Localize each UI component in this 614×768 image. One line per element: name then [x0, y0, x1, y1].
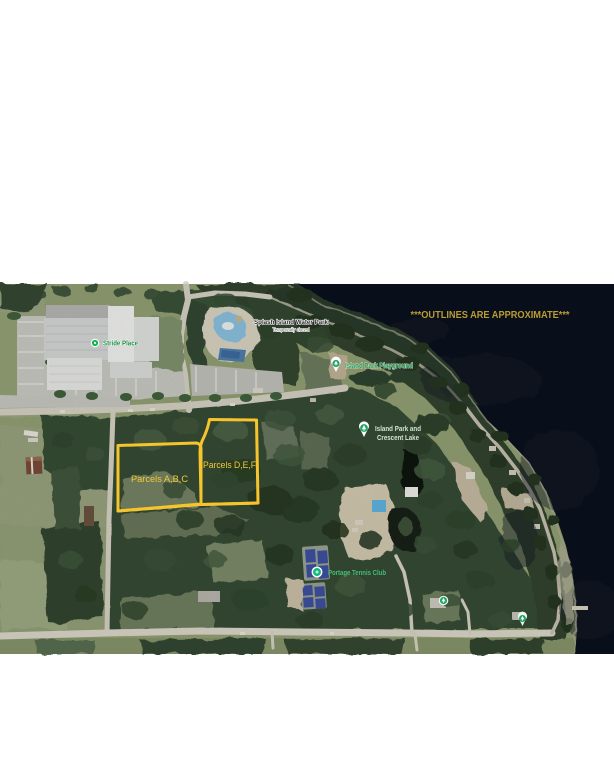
svg-text:Portage Tennis Club: Portage Tennis Club: [328, 568, 387, 577]
svg-text:Parcels D,E,F: Parcels D,E,F: [203, 460, 256, 471]
svg-text:***OUTLINES ARE APPROXIMATE***: ***OUTLINES ARE APPROXIMATE***: [411, 310, 570, 321]
svg-text:Splash Island Water Park: Splash Island Water Park: [254, 319, 328, 326]
svg-text:Island Park Playground: Island Park Playground: [345, 361, 413, 370]
svg-text:Stride Place: Stride Place: [103, 341, 138, 348]
svg-text:Crescent Lake: Crescent Lake: [377, 433, 419, 442]
svg-text:Temporarily closed: Temporarily closed: [273, 328, 310, 334]
svg-text:Parcels A,B,C: Parcels A,B,C: [131, 474, 188, 485]
svg-text:Island Park and: Island Park and: [375, 424, 421, 433]
